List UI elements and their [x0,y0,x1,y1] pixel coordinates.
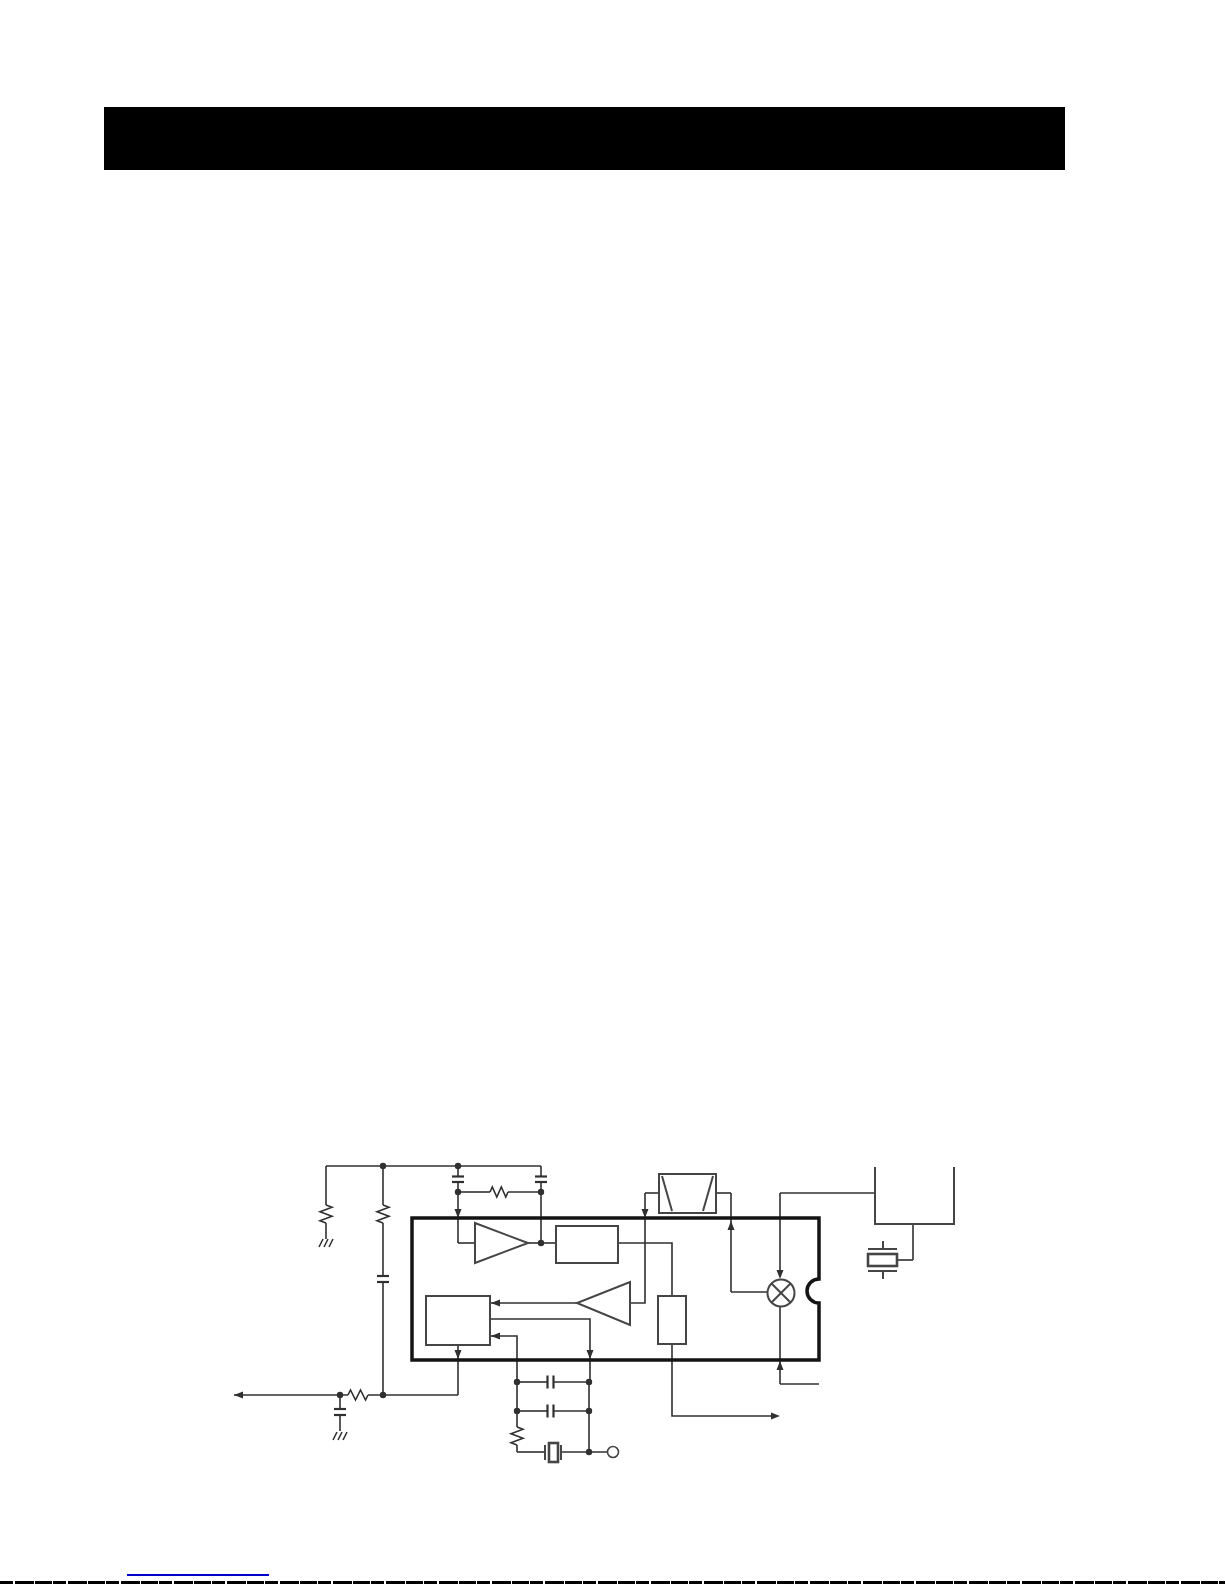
resistor-symbol [511,1427,523,1445]
wire [490,1319,590,1382]
capacitor-symbol [452,1177,464,1183]
function-block [658,1296,686,1344]
arrowhead-left [491,1333,500,1340]
function-block [556,1226,618,1263]
function-block [426,1296,490,1345]
open-top-box [875,1167,954,1224]
arrowhead-down [777,1270,784,1279]
ground-symbol [319,1239,333,1247]
junction-dot [380,1392,386,1398]
arrowhead-right [771,1413,780,1420]
arrowhead-left [234,1392,243,1399]
arrowheads [234,1209,784,1420]
capacitor-symbol [548,1405,554,1418]
junction-dot [380,1163,386,1169]
crystal-resonator [545,1443,561,1462]
junction-dot [514,1408,520,1414]
arrowhead-up [728,1221,735,1230]
ceramic-filter-box [659,1174,716,1213]
junction-dot [538,1189,544,1195]
ground-symbol [333,1432,347,1440]
amplifier-triangle [475,1223,528,1263]
resistor-symbol [348,1390,368,1400]
junction-dot [586,1379,592,1385]
mixer-circle [768,1280,795,1307]
resistor-symbol [377,1205,389,1223]
document-page [0,0,1225,1585]
junction-dot [514,1379,520,1385]
capacitor-symbol [535,1177,547,1183]
footer-link-underline[interactable] [127,1574,269,1576]
arrowhead-down [455,1350,462,1359]
resistor-symbol [320,1205,332,1223]
arrowhead-left [491,1300,500,1307]
open-terminal [608,1447,619,1458]
component-outlines [426,1167,954,1462]
application-circuit-schematic [0,0,1225,1585]
junction-dot [455,1189,461,1195]
junction-dot [538,1240,544,1246]
capacitor-symbol [548,1376,554,1389]
junction-dot [586,1449,592,1455]
resistor-symbol [490,1187,508,1197]
capacitor-symbol [334,1409,346,1415]
junction-dot [586,1408,592,1414]
arrowhead-down [587,1350,594,1359]
scan-edge-line [0,1581,1225,1584]
wire [672,1344,772,1416]
ic-package-outline [412,1218,819,1360]
arrowhead-up [777,1361,784,1370]
junction-dot [455,1163,461,1169]
capacitor-symbol [377,1276,389,1282]
junction-dot [337,1392,343,1398]
crystal-resonator [868,1241,897,1279]
wire [490,1336,517,1427]
